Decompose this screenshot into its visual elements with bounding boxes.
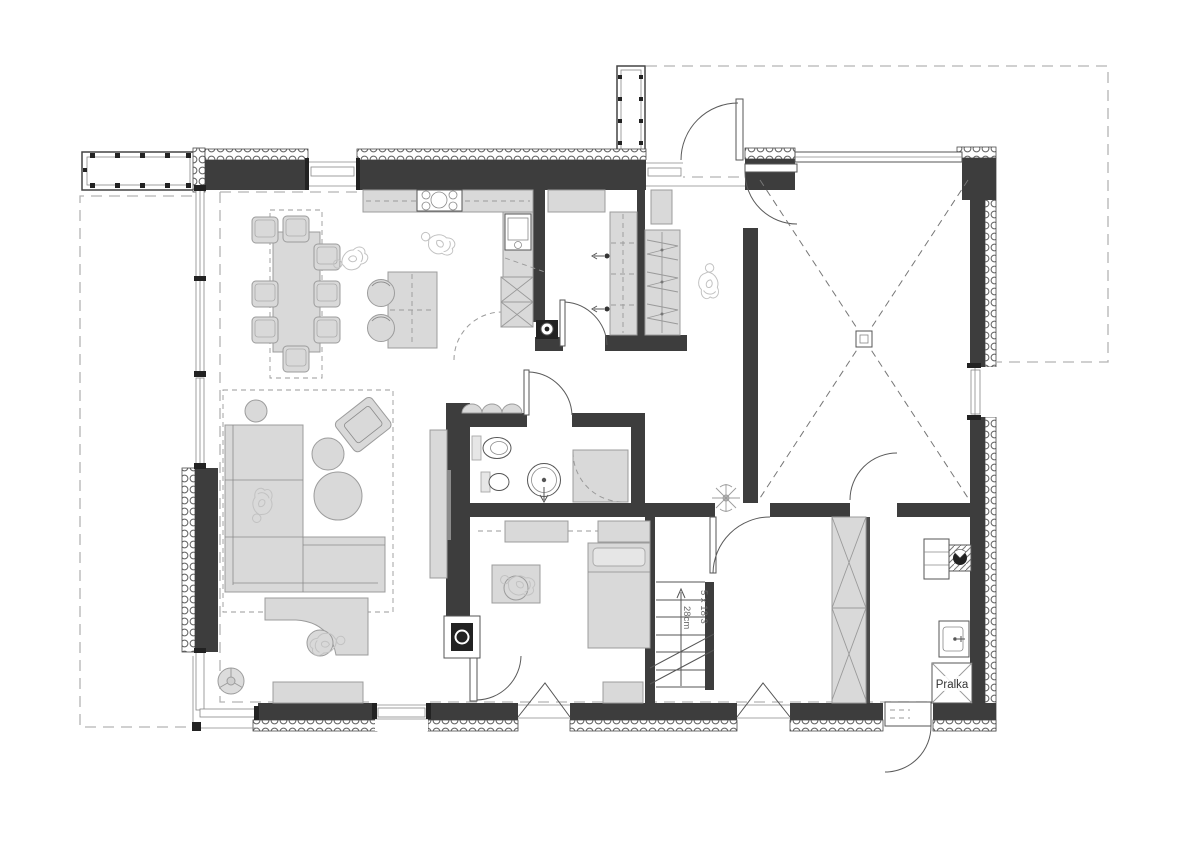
door-leaf bbox=[470, 655, 477, 701]
pouf bbox=[245, 400, 267, 422]
radiator-scallops bbox=[462, 404, 522, 413]
door-leaf bbox=[524, 370, 529, 415]
wall-segment bbox=[962, 158, 996, 200]
dining-chair bbox=[314, 244, 340, 270]
plant bbox=[218, 668, 244, 694]
headboard-shelf bbox=[598, 521, 650, 542]
toilet bbox=[472, 436, 511, 460]
dining-chair bbox=[314, 317, 340, 343]
pergola-railing bbox=[82, 152, 195, 190]
wall-segment bbox=[970, 200, 985, 367]
entrance-door-leaf bbox=[736, 99, 743, 160]
pouf bbox=[312, 438, 344, 470]
corridor-wardrobe bbox=[832, 517, 866, 703]
wall-segment bbox=[357, 160, 646, 190]
bed bbox=[588, 543, 650, 648]
sideboard bbox=[273, 682, 363, 703]
window-garage-right bbox=[967, 363, 998, 420]
garage-door-beam bbox=[795, 152, 962, 162]
stairs-dimension: 5 x 18,3 bbox=[698, 590, 709, 624]
window-left-glazing bbox=[194, 185, 206, 469]
pantry-shelves bbox=[610, 212, 637, 335]
washing-machine-label: Pralka bbox=[936, 679, 969, 691]
wall-shelf bbox=[505, 521, 568, 542]
window-entrance-sidelight bbox=[646, 160, 683, 190]
office-chair bbox=[504, 576, 528, 600]
pillow bbox=[593, 548, 645, 566]
dining-table bbox=[273, 232, 320, 352]
dining-chair bbox=[283, 216, 309, 242]
wall-segment bbox=[790, 703, 883, 720]
tv bbox=[447, 470, 451, 540]
plant bbox=[712, 484, 740, 512]
hall-bench bbox=[651, 190, 672, 224]
bar-stool bbox=[368, 315, 395, 342]
door-leaf bbox=[745, 164, 797, 172]
utility-sink bbox=[939, 621, 969, 657]
hall-wardrobe bbox=[645, 230, 680, 335]
door-threshold bbox=[885, 702, 931, 726]
tv-sideboard bbox=[430, 430, 447, 578]
stairs-dimension: 28cm bbox=[681, 606, 692, 629]
floor-plan-drawing: 5 x 18,3 28cm Pralka bbox=[0, 0, 1200, 848]
pantry-shelf bbox=[548, 190, 605, 212]
shower-tray bbox=[573, 450, 628, 502]
fireplace bbox=[444, 616, 480, 658]
window-living-bottom bbox=[372, 701, 431, 731]
chimney bbox=[617, 66, 645, 162]
bidet-sink bbox=[481, 472, 509, 492]
door-leaf bbox=[710, 517, 716, 573]
wall-segment bbox=[933, 703, 996, 720]
flue-box bbox=[536, 320, 558, 339]
washing-machine: Pralka bbox=[932, 663, 972, 703]
dresser bbox=[603, 682, 643, 703]
dining-chair bbox=[252, 317, 278, 343]
wall-segment bbox=[205, 160, 308, 190]
dining-chair bbox=[252, 281, 278, 307]
wall-segment bbox=[258, 703, 375, 720]
floor-plan-canvas: 5 x 18,3 28cm Pralka bbox=[0, 0, 1200, 848]
window-top-dining bbox=[305, 158, 360, 190]
door-leaf bbox=[560, 300, 565, 346]
pouf bbox=[314, 472, 362, 520]
floor-drain bbox=[856, 331, 872, 347]
wall-segment bbox=[195, 468, 218, 652]
dining-chair bbox=[252, 217, 278, 243]
dining-chair bbox=[283, 346, 309, 372]
wall-segment bbox=[428, 703, 518, 720]
wall-segment bbox=[570, 703, 737, 720]
bar-stool bbox=[368, 280, 395, 307]
dining-chair bbox=[314, 281, 340, 307]
